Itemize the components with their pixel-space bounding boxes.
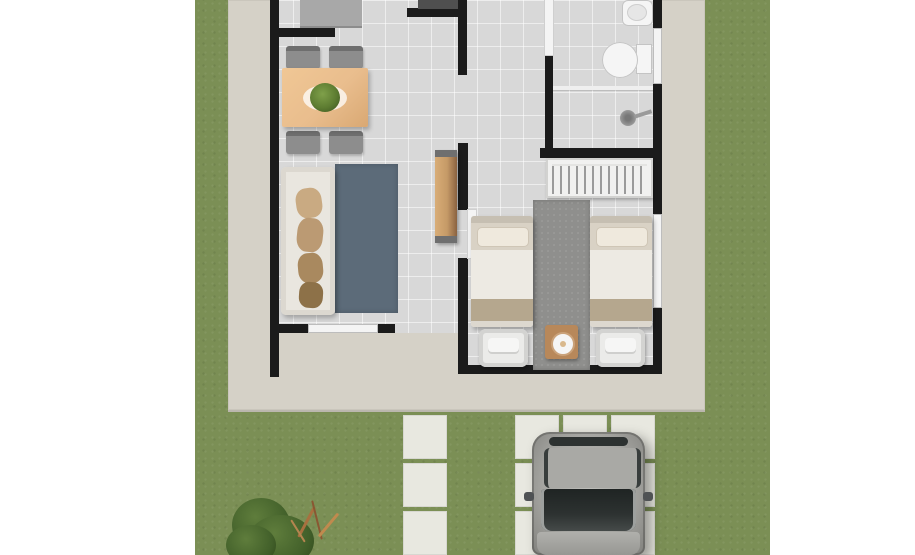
wall-bathroom: [545, 55, 553, 150]
sink-basin: [627, 4, 647, 21]
car-mirror-left: [524, 492, 534, 501]
living-rug: [335, 164, 398, 313]
walkway-paver: [403, 415, 447, 459]
walkway-paver: [403, 463, 447, 507]
dining-chair: [286, 131, 320, 154]
twin-bed-right: [590, 216, 652, 327]
wall-bottom-living-a: [270, 324, 308, 333]
bed-foot: [590, 321, 652, 327]
wall-bottom-living-b: [378, 324, 395, 333]
car-roof: [544, 448, 641, 488]
car-mirror-right: [643, 492, 653, 501]
wall-closet: [540, 148, 662, 158]
car-hood: [537, 532, 640, 555]
twin-bed-left: [471, 216, 533, 327]
wall-stub-kitchen: [279, 28, 335, 37]
wall-stub-mid: [407, 8, 458, 17]
toilet-tank: [636, 44, 652, 74]
floor-plan-render: [0, 0, 915, 555]
bed-pillow: [477, 227, 529, 247]
bed-headboard: [590, 216, 652, 223]
dining-chair: [329, 46, 363, 69]
walkway-paver: [403, 511, 447, 555]
table-lamp: [551, 332, 575, 356]
wall-left: [270, 0, 279, 377]
bed-blanket: [471, 299, 533, 321]
car-windshield: [541, 489, 636, 531]
bedroom-window: [653, 214, 662, 308]
sofa-pillow: [297, 252, 325, 284]
dark-counter: [418, 0, 458, 9]
bed-foot: [471, 321, 533, 327]
toilet-bowl: [602, 42, 638, 78]
shower-partition: [553, 86, 653, 90]
living-window: [308, 324, 378, 333]
bathroom-window: [653, 28, 662, 84]
bathroom-door: [545, 0, 553, 55]
table-plant: [310, 83, 340, 112]
bed-headboard: [471, 216, 533, 223]
dining-chair: [329, 131, 363, 154]
bed-blanket: [590, 299, 652, 321]
wall-mid-hall: [458, 0, 467, 75]
shower-head: [620, 110, 636, 126]
bed-pillow: [596, 227, 648, 247]
sofa-pillow: [298, 281, 324, 309]
wall-bedroom-a: [458, 143, 468, 210]
bed-foot-chair: [596, 329, 645, 367]
wardrobe-hangers: [552, 164, 647, 194]
car-rear-window: [549, 437, 628, 446]
dining-chair: [286, 46, 320, 69]
bed-foot-chair: [479, 329, 528, 367]
kitchen-counter: [300, 0, 362, 28]
tv-console: [435, 150, 457, 243]
wall-bedroom-b: [458, 258, 468, 365]
